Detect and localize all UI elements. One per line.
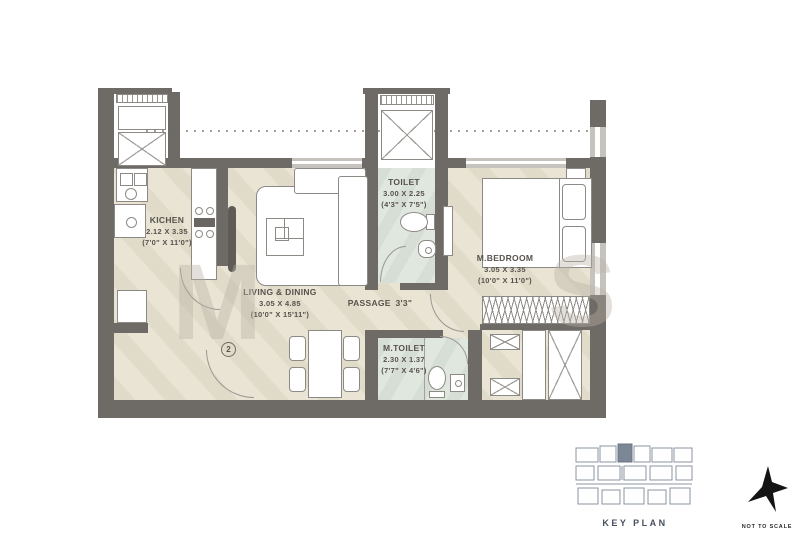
north-star-icon	[746, 466, 790, 514]
window-right-upper	[590, 127, 606, 157]
kitchen-dims-m: 2.12 X 3.35	[107, 226, 227, 237]
toilet-name: TOILET	[347, 176, 461, 188]
window-right-lower	[590, 243, 606, 295]
toilet-label: TOILET 3.00 X 2.25 (4'3" X 7'5")	[347, 176, 461, 210]
passage-name: PASSAGE	[348, 298, 391, 308]
wall-shaft-right	[168, 92, 180, 166]
master-bedroom-name: M.BEDROOM	[445, 252, 565, 264]
north-indicator: NOT TO SCALE	[728, 466, 800, 536]
toilet-wc	[400, 212, 428, 232]
master-toilet-label: M.TOILET 2.30 X 1.37 (7'7" X 4'6")	[348, 342, 460, 376]
dining-chair-1	[289, 336, 306, 361]
toilet-washbasin	[418, 240, 436, 258]
left-shaft-lift	[118, 106, 166, 130]
wardrobe-hanging-rail	[482, 296, 590, 324]
master-bedroom-label: M.BEDROOM 3.05 X 3.35 (10'0" X 11'0")	[445, 252, 565, 286]
coffee-table-inlay-box	[275, 227, 289, 241]
kitchen-dims-ft: (7'0" X 11'0")	[107, 237, 227, 248]
wall-bottom	[98, 400, 606, 418]
dining-chair-2	[289, 367, 306, 392]
cabinet-basin-left	[120, 173, 133, 186]
window-living-top	[292, 158, 362, 168]
entrance-door-number: 2	[221, 342, 236, 357]
passage-width: 3'3"	[396, 298, 413, 308]
left-shaft-duct-icon	[118, 132, 166, 166]
wall-master-toilet-top	[365, 330, 443, 338]
not-to-scale-label: NOT TO SCALE	[728, 524, 800, 530]
wall-left	[98, 88, 114, 418]
wall-kitchen-stub	[98, 323, 148, 333]
key-plan-label: KEY PLAN	[570, 518, 700, 528]
master-basin-drain	[455, 380, 462, 387]
bedside-table	[566, 168, 586, 179]
toilet-shaft-duct-icon	[381, 110, 433, 160]
key-plan-drawing	[570, 440, 700, 512]
wall-master-toilet-top-stub	[468, 330, 482, 338]
master-toilet-wc-tank	[429, 391, 445, 398]
toilet-dims-ft: (4'3" X 7'5")	[347, 199, 461, 210]
wardrobe-unit-icon	[548, 330, 582, 400]
kitchen-label: KICHEN 2.12 X 3.35 (7'0" X 11'0")	[107, 214, 227, 248]
master-toilet-name: M.TOILET	[348, 342, 460, 354]
wall-toilet-shaft-left	[365, 92, 378, 166]
coffee-table	[266, 218, 304, 256]
key-plan: KEY PLAN	[570, 440, 700, 535]
master-bedroom-dims-ft: (10'0" X 11'0")	[445, 275, 565, 286]
dining-table	[308, 330, 342, 398]
tv-unit	[228, 206, 236, 272]
bedroom-wall-mirror	[443, 206, 453, 256]
master-bedroom-dims-m: 3.05 X 3.35	[445, 264, 565, 275]
window-bedroom-top	[466, 158, 566, 168]
dresser-upper-icon	[490, 334, 520, 350]
passage-label: PASSAGE 3'3"	[320, 293, 440, 311]
bed-pillow-1	[562, 184, 586, 220]
wall-master-toilet-right	[468, 338, 482, 410]
bed-pillow-2	[562, 226, 586, 262]
wall-toilet-shaft-right	[435, 92, 448, 166]
dresser-lower-icon	[490, 378, 520, 396]
kitchen-name: KICHEN	[107, 214, 227, 226]
master-toilet-dims-m: 2.30 X 1.37	[348, 354, 460, 365]
wall-toilet-bottom	[400, 283, 448, 290]
toilet-basin-drain	[425, 247, 432, 254]
cabinet-hob-circle	[125, 188, 137, 200]
dresser-middle	[522, 330, 546, 400]
toilet-dims-m: 3.00 X 2.25	[347, 188, 461, 199]
floor-plan-page: 2 KICHEN 2.12 X 3.35 (7'0" X 11'0") LIVI…	[0, 0, 800, 544]
master-toilet-washbasin	[450, 374, 465, 392]
kitchen-service-window	[117, 290, 147, 323]
master-toilet-dims-ft: (7'7" X 4'6")	[348, 365, 460, 376]
toilet-shaft-grill	[380, 95, 434, 105]
left-shaft-grill	[116, 94, 168, 103]
kitchen-counter-cabinet	[116, 168, 148, 202]
cabinet-basin-right	[134, 173, 147, 186]
